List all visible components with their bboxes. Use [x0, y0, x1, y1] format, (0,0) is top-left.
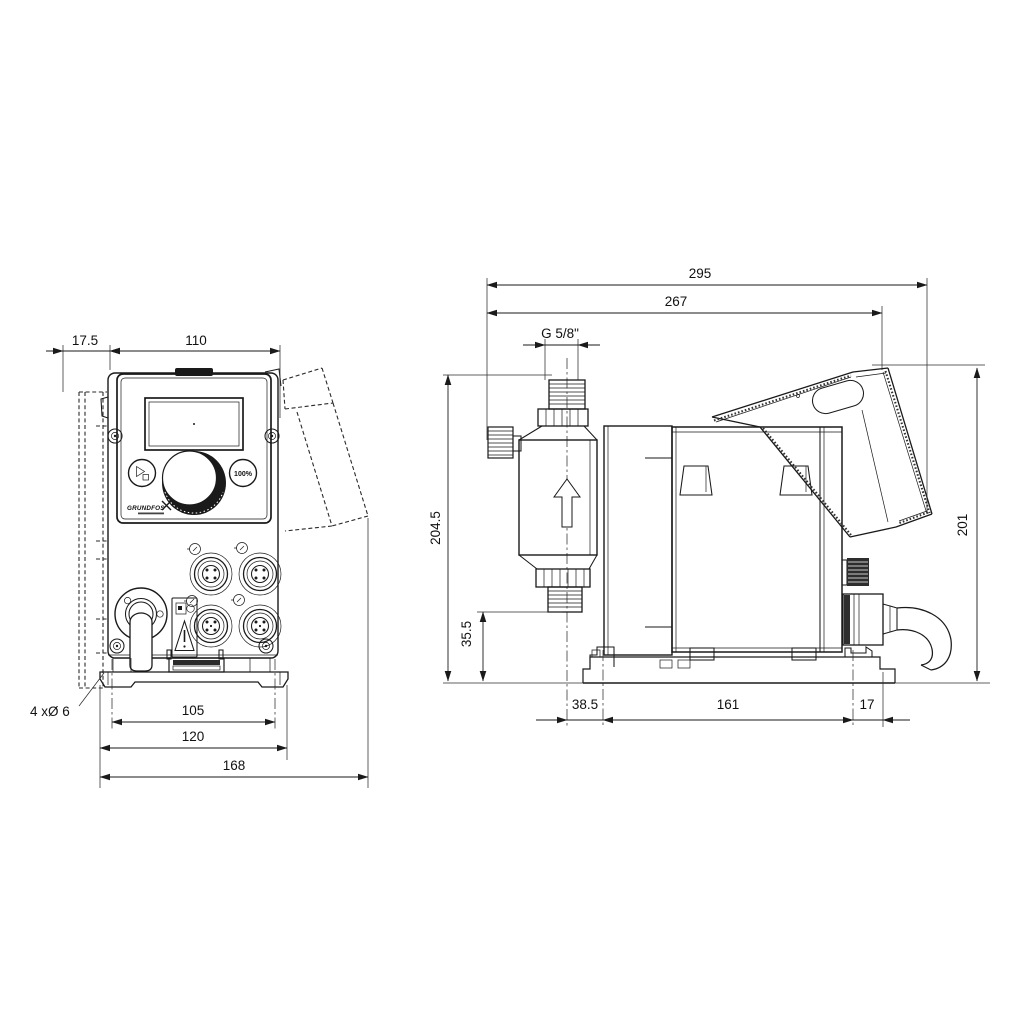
dim-mount-holes-note: 4 xØ 6	[30, 704, 70, 719]
mains-cable	[897, 608, 951, 670]
dim-wall-offset: 17.5	[72, 333, 98, 348]
dim-base-rear-offset: 17	[859, 697, 874, 712]
suction-union-nut	[536, 569, 590, 587]
dim-mount-hole-spacing: 161	[717, 697, 740, 712]
dim-cover-height: 201	[955, 514, 970, 537]
tilted-cover-hidden-outline	[283, 368, 368, 531]
dim-overall-height: 204.5	[428, 511, 443, 545]
percent-100-button[interactable]: 100%	[230, 460, 257, 487]
dim-length-to-cover: 267	[665, 294, 688, 309]
signal-connectors	[184, 543, 281, 648]
motor-housing	[672, 427, 842, 660]
warning-label	[172, 598, 197, 657]
dim-connection-thread: G 5/8"	[541, 326, 579, 341]
dim-body-width: 110	[185, 333, 207, 348]
mounting-clip	[680, 466, 712, 495]
dim-hole-spacing: 105	[182, 703, 205, 718]
dim-plate-width: 120	[182, 729, 205, 744]
connector-socket[interactable]	[239, 605, 281, 647]
display	[145, 398, 243, 450]
side-dimensions: 295 267 G 5/8" 204.5 35.5 201 38.5 161 1…	[428, 266, 985, 727]
connector-socket[interactable]	[190, 553, 232, 595]
percent-100-label: 100%	[234, 471, 253, 478]
power-cable	[130, 613, 152, 671]
start-stop-button[interactable]	[129, 460, 156, 487]
dosing-head	[488, 358, 597, 727]
connector-symbol-icon	[184, 543, 248, 607]
dosing-pump-dimensional-drawing: 100% GRUNDFOS	[0, 0, 1024, 1024]
dimensional-drawing-canvas: 100% GRUNDFOS	[0, 0, 1024, 1024]
flow-direction-arrow-icon	[554, 479, 580, 527]
connector-socket[interactable]	[239, 553, 281, 595]
vent-valve-knob	[488, 427, 521, 458]
dim-base-front-offset: 38.5	[572, 697, 598, 712]
dim-overall-length: 295	[689, 266, 712, 281]
dim-valve-height: 35.5	[459, 621, 474, 647]
front-view: 100% GRUNDFOS	[30, 333, 368, 788]
connector-socket[interactable]	[190, 605, 232, 647]
brand-logo-text: GRUNDFOS	[127, 505, 165, 512]
discharge-union-nut	[538, 409, 588, 426]
control-panel: 100% GRUNDFOS	[117, 374, 271, 523]
mounting-latch	[167, 650, 224, 672]
click-wheel-knob[interactable]	[162, 451, 226, 515]
wall-plate-hidden-outline	[79, 392, 108, 688]
side-view: 295 267 G 5/8" 204.5 35.5 201 38.5 161 1…	[428, 266, 990, 727]
brand-logo: GRUNDFOS	[127, 501, 171, 514]
front-dimensions: 17.5 110 105 120 168 4 xØ 6	[30, 333, 368, 788]
head-bracket	[590, 426, 672, 667]
suction-thread	[548, 587, 582, 612]
tilted-cover-side	[712, 368, 932, 537]
dim-overall-width: 168	[223, 758, 246, 773]
